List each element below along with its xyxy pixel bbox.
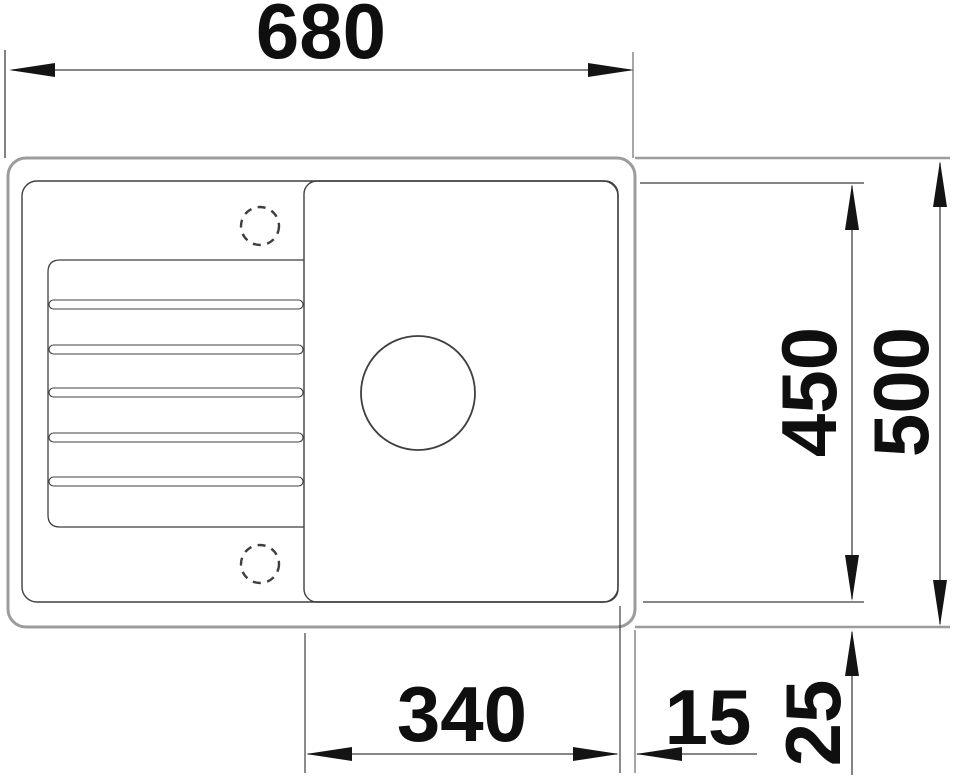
arrowhead-500-bottom	[933, 580, 947, 626]
arrowhead-680-right	[588, 63, 634, 77]
drainboard-groove	[49, 388, 303, 397]
arrowhead-450-top	[845, 184, 859, 230]
drainboard-groove	[49, 300, 303, 309]
arrowhead-450-bottom	[845, 555, 859, 601]
dimension-label-rim-to-edge: 25	[769, 680, 857, 767]
arrowhead-340-right	[573, 747, 619, 761]
dimension-label-overall-width: 680	[256, 0, 386, 75]
dimension-label-overall-depth: 500	[857, 327, 945, 457]
drainboard-groove	[49, 345, 303, 354]
arrowhead-500-top	[933, 161, 947, 207]
drainboard-groove	[49, 477, 303, 486]
dimension-label-inner-depth: 450	[765, 327, 853, 457]
arrowhead-25	[845, 630, 859, 676]
sink-outer-contour	[8, 158, 635, 627]
sink-inner-rim	[22, 181, 618, 602]
tap-hole-bottom	[241, 545, 279, 583]
dimension-label-bowl-to-edge: 15	[665, 673, 752, 761]
technical-drawing-page: 680 340 15 450 500 25	[0, 0, 960, 777]
dimension-label-bowl-width: 340	[397, 670, 527, 758]
arrowhead-680-left	[9, 63, 55, 77]
sink-bowl	[304, 181, 618, 602]
sink-technical-drawing: 680 340 15 450 500 25	[0, 0, 960, 777]
arrowhead-340-left	[306, 747, 352, 761]
drain-hole	[361, 336, 475, 450]
drainboard-groove	[49, 433, 303, 442]
tap-hole-top	[241, 207, 279, 245]
